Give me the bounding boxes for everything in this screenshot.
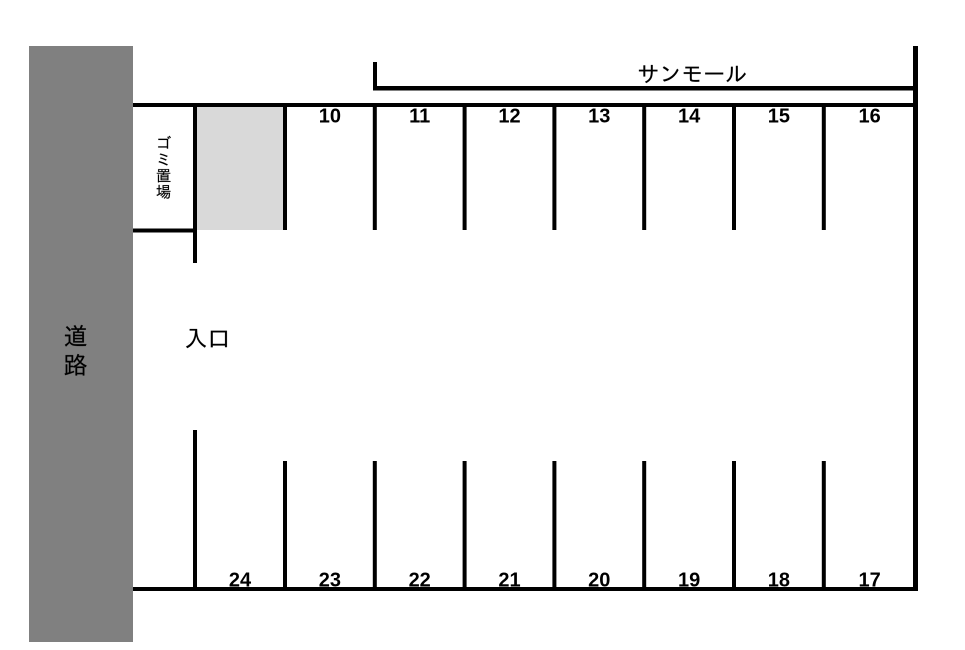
svg-text:14: 14 [678, 106, 701, 128]
svg-text:12: 12 [498, 106, 520, 128]
svg-text:10: 10 [319, 106, 341, 128]
svg-text:15: 15 [768, 106, 790, 128]
svg-text:11: 11 [409, 106, 430, 128]
svg-text:13: 13 [588, 106, 610, 128]
svg-text:16: 16 [858, 106, 880, 128]
